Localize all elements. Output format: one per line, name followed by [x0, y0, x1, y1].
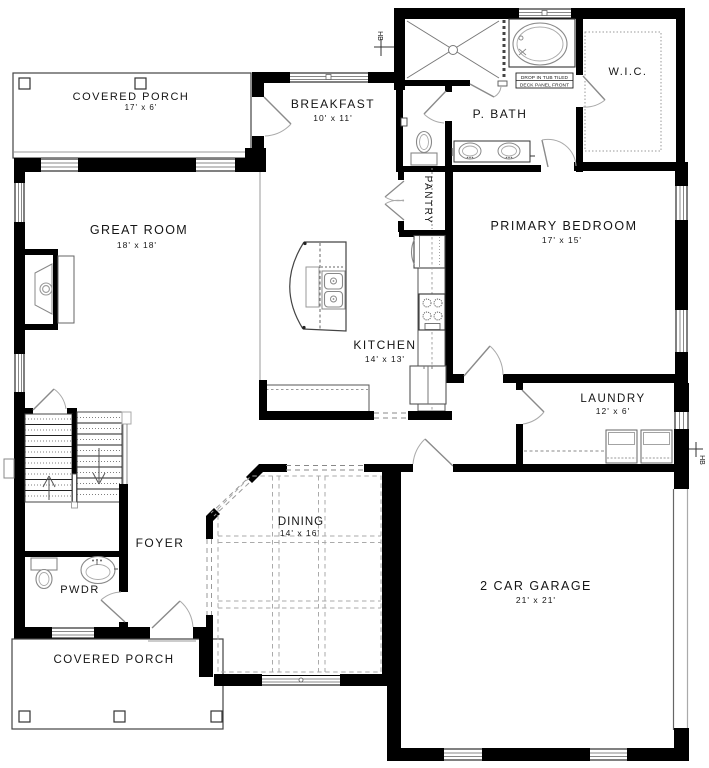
- svg-text:14' x 13': 14' x 13': [365, 354, 405, 364]
- svg-text:12' x 6': 12' x 6': [596, 406, 630, 416]
- svg-text:PWDR: PWDR: [60, 584, 100, 596]
- svg-text:FOYER: FOYER: [136, 536, 185, 550]
- svg-text:DINING: DINING: [278, 516, 324, 528]
- svg-text:PANTRY: PANTRY: [422, 176, 433, 225]
- svg-text:DROP IN TUB TILED: DROP IN TUB TILED: [521, 75, 569, 81]
- svg-text:17' x 6': 17' x 6': [125, 103, 158, 112]
- svg-text:LAUNDRY: LAUNDRY: [580, 393, 645, 405]
- svg-text:HB: HB: [376, 31, 383, 41]
- svg-text:COVERED PORCH: COVERED PORCH: [73, 91, 190, 103]
- svg-text:2 CAR GARAGE: 2 CAR GARAGE: [480, 579, 592, 593]
- svg-text:KITCHEN: KITCHEN: [353, 338, 416, 352]
- svg-text:BREAKFAST: BREAKFAST: [291, 97, 375, 111]
- svg-text:14' x 16': 14' x 16': [280, 528, 320, 538]
- svg-text:PRIMARY BEDROOM: PRIMARY BEDROOM: [490, 219, 637, 233]
- svg-text:GREAT ROOM: GREAT ROOM: [90, 223, 188, 237]
- svg-text:P. BATH: P. BATH: [473, 107, 528, 121]
- svg-text:HB: HB: [698, 455, 705, 465]
- svg-text:21' x 21': 21' x 21': [516, 595, 556, 605]
- svg-text:DECK PANEL FRONT: DECK PANEL FRONT: [520, 83, 569, 89]
- svg-text:18' x 18': 18' x 18': [117, 240, 157, 250]
- svg-text:COVERED PORCH: COVERED PORCH: [53, 654, 174, 666]
- svg-text:W.I.C.: W.I.C.: [609, 66, 648, 78]
- svg-text:17' x 15': 17' x 15': [542, 235, 582, 245]
- svg-text:10' x 11': 10' x 11': [313, 113, 353, 123]
